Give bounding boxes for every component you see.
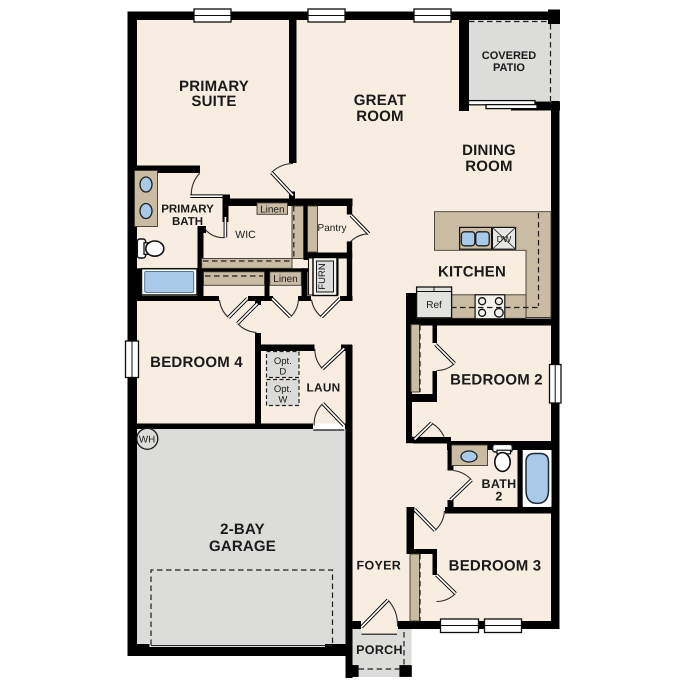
svg-text:BATH: BATH: [172, 216, 203, 228]
svg-text:Opt.: Opt.: [274, 356, 292, 367]
svg-text:2-BAY: 2-BAY: [220, 521, 265, 538]
svg-text:LAUN: LAUN: [307, 381, 341, 395]
svg-text:PRIMARY: PRIMARY: [161, 204, 214, 216]
svg-text:BEDROOM 2: BEDROOM 2: [450, 372, 543, 389]
svg-text:Linen: Linen: [260, 204, 284, 215]
svg-text:WH: WH: [139, 434, 155, 445]
svg-text:FOYER: FOYER: [357, 559, 402, 573]
svg-text:ROOM: ROOM: [465, 158, 512, 175]
svg-text:DINING: DINING: [462, 142, 516, 159]
svg-text:GARAGE: GARAGE: [209, 538, 276, 555]
svg-text:FURN: FURN: [317, 263, 328, 290]
svg-text:W: W: [278, 395, 287, 406]
svg-text:SUITE: SUITE: [191, 93, 236, 110]
svg-text:Pantry: Pantry: [318, 223, 347, 234]
svg-text:D: D: [279, 367, 286, 378]
svg-text:Linen: Linen: [273, 274, 297, 285]
svg-text:COVERED: COVERED: [482, 50, 536, 62]
svg-text:ROOM: ROOM: [356, 108, 403, 125]
svg-text:GREAT: GREAT: [354, 92, 406, 109]
svg-text:BEDROOM 3: BEDROOM 3: [449, 558, 542, 575]
svg-text:Opt.: Opt.: [274, 384, 292, 395]
svg-text:Ref: Ref: [426, 300, 442, 311]
svg-text:BEDROOM 4: BEDROOM 4: [150, 354, 243, 371]
svg-text:2: 2: [495, 490, 502, 504]
svg-text:PORCH: PORCH: [356, 643, 403, 657]
svg-text:WIC: WIC: [235, 229, 256, 241]
svg-text:KITCHEN: KITCHEN: [438, 264, 506, 281]
svg-text:DW: DW: [497, 234, 512, 244]
svg-text:PATIO: PATIO: [493, 62, 525, 74]
